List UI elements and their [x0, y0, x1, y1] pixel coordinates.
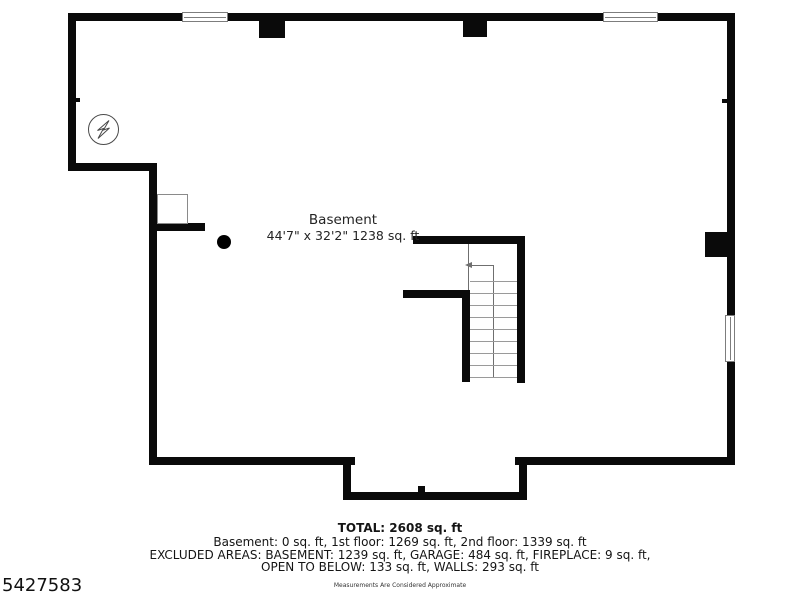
window-pane-line — [730, 317, 731, 360]
stair-direction-arrow — [465, 262, 472, 268]
window-pane-line — [184, 17, 226, 18]
stair-arrow-shaft — [471, 265, 494, 266]
total-area-text: TOTAL: 2608 sq. ft — [0, 521, 800, 536]
wall-tick-right — [722, 99, 727, 103]
stair-tread — [470, 293, 517, 294]
room-label-group: Basement 44'7" x 32'2" 1238 sq. ft — [243, 212, 443, 243]
utility-box — [157, 194, 188, 224]
listing-id: 5427583 — [2, 575, 82, 596]
wall-bumpout-bottom — [343, 492, 527, 500]
room-label: Basement — [243, 212, 443, 228]
window-right — [725, 315, 735, 362]
electrical-symbol-icon — [87, 113, 120, 146]
wall-tick-left — [76, 98, 80, 102]
window-top-right — [603, 12, 658, 22]
stair-tread — [470, 377, 517, 378]
wall-left-upper — [68, 13, 76, 171]
wall-bottom-left — [149, 457, 355, 465]
stair-tread — [470, 317, 517, 318]
stair-tread — [470, 365, 517, 366]
wall-left-lower — [149, 163, 157, 465]
stair-tread — [470, 329, 517, 330]
excluded-areas-text-2: OPEN TO BELOW: 133 sq. ft, WALLS: 293 sq… — [0, 561, 800, 574]
window-pane-line — [605, 17, 656, 18]
disclaimer-text: Measurements Are Considered Approximate — [0, 582, 800, 590]
area-summary: TOTAL: 2608 sq. ft Basement: 0 sq. ft, 1… — [0, 521, 800, 590]
support-column-dot — [217, 235, 231, 249]
stair-wall-right — [517, 236, 525, 383]
stair-tread — [470, 353, 517, 354]
stair-wall-left — [462, 290, 470, 382]
basement-floorplan: Basement 44'7" x 32'2" 1238 sq. ft — [0, 0, 800, 600]
stair-tread — [470, 305, 517, 306]
chimney-right — [705, 232, 727, 257]
floor-areas-text: Basement: 0 sq. ft, 1st floor: 1269 sq. … — [0, 536, 800, 549]
stair-tread — [470, 341, 517, 342]
wall-stub-top-2 — [463, 21, 487, 37]
wall-step-horizontal — [68, 163, 157, 171]
wall-stub-top-1 — [259, 21, 285, 38]
wall-right — [727, 13, 735, 465]
window-top-left — [182, 12, 228, 22]
stair-tread — [470, 281, 517, 282]
room-dimensions: 44'7" x 32'2" 1238 sq. ft — [243, 228, 443, 243]
stair-wall-mid — [403, 290, 469, 298]
wall-bottom-right — [515, 457, 735, 465]
wall-stub-interior-left — [157, 223, 205, 231]
wall-tick-bumpout — [418, 486, 425, 492]
